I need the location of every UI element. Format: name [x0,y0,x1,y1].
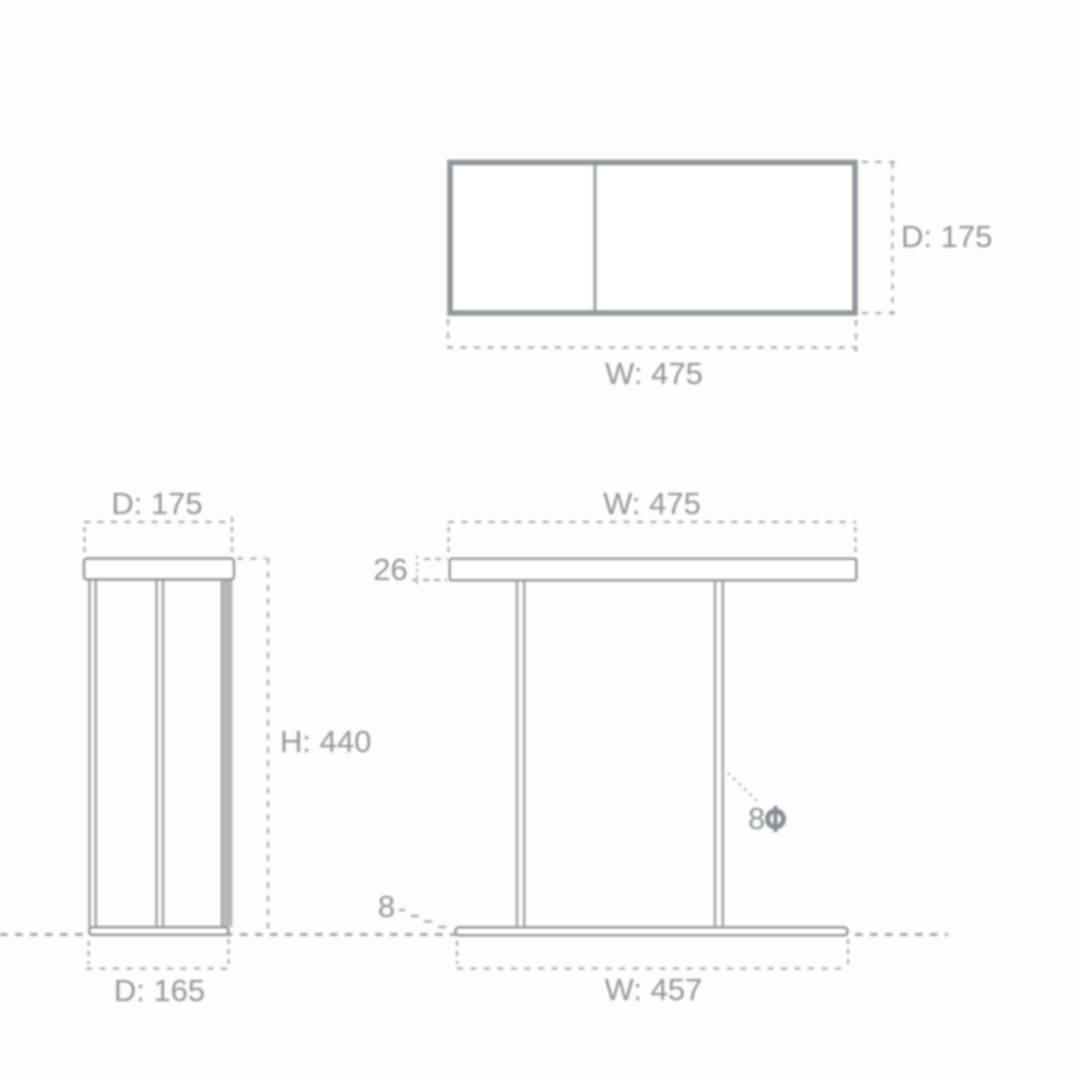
svg-text:8: 8 [378,889,395,924]
svg-text:W: 475: W: 475 [603,486,701,521]
svg-text:W: 457: W: 457 [605,972,703,1007]
svg-text:H: 440: H: 440 [280,724,371,759]
svg-text:D: 165: D: 165 [114,973,205,1008]
svg-text:W: 475: W: 475 [605,356,703,391]
svg-text:D: 175: D: 175 [901,219,992,254]
svg-text:D: 175: D: 175 [111,486,202,521]
svg-text:8: 8 [748,801,765,836]
svg-text:26: 26 [373,552,407,587]
